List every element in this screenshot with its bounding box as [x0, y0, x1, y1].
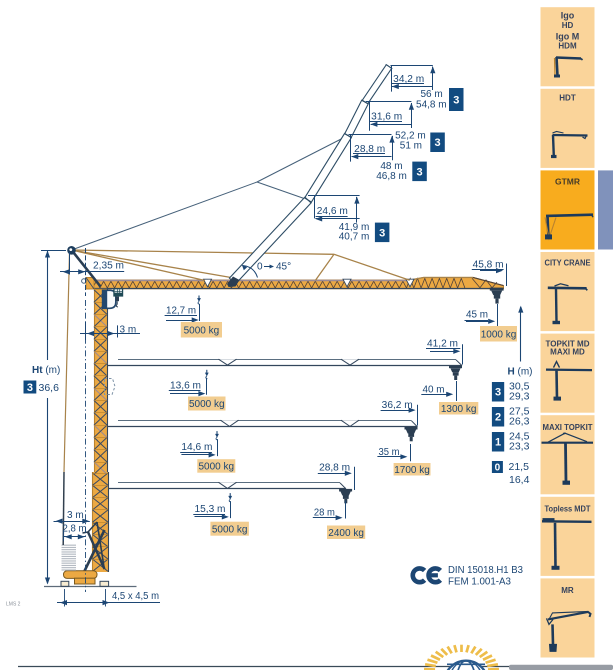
svg-text:3 m: 3 m [120, 325, 137, 336]
svg-text:2: 2 [495, 412, 501, 424]
svg-text:LMS 2: LMS 2 [6, 602, 21, 608]
svg-text:45 m: 45 m [466, 309, 488, 320]
svg-text:HDM: HDM [558, 42, 577, 51]
svg-text:MAXI MD: MAXI MD [550, 348, 585, 357]
svg-text:26,3: 26,3 [509, 416, 530, 428]
svg-text:Igo: Igo [561, 11, 575, 21]
svg-text:41,2 m: 41,2 m [427, 338, 458, 349]
svg-text:15,3 m: 15,3 m [195, 504, 226, 515]
svg-text:1700 kg: 1700 kg [394, 465, 430, 476]
svg-text:3: 3 [453, 94, 459, 106]
svg-text:46,8 m: 46,8 m [376, 171, 407, 182]
svg-text:HD: HD [562, 21, 574, 30]
svg-text:3: 3 [434, 137, 440, 149]
svg-text:13,6 m: 13,6 m [170, 381, 201, 392]
svg-text:24,6 m: 24,6 m [317, 206, 348, 217]
svg-text:0: 0 [495, 463, 501, 474]
svg-text:GTMR: GTMR [555, 176, 580, 186]
svg-text:5000 kg: 5000 kg [189, 399, 225, 410]
svg-text:1000 kg: 1000 kg [481, 329, 517, 340]
svg-text:5000 kg: 5000 kg [212, 524, 248, 535]
svg-text:36,6: 36,6 [39, 382, 60, 394]
svg-text:Ht (m): Ht (m) [32, 365, 60, 376]
svg-text:3: 3 [495, 387, 501, 399]
svg-text:28 m: 28 m [314, 507, 335, 518]
svg-text:MR: MR [561, 586, 574, 595]
svg-text:45°: 45° [276, 262, 291, 273]
svg-text:21,5: 21,5 [509, 461, 530, 473]
svg-text:3: 3 [379, 227, 385, 239]
svg-text:FEM 1.001-A3: FEM 1.001-A3 [448, 576, 511, 587]
svg-text:H (m): H (m) [508, 367, 533, 378]
svg-text:4,5 x 4,5 m: 4,5 x 4,5 m [112, 591, 159, 602]
svg-text:2400 kg: 2400 kg [328, 528, 364, 539]
svg-text:40,7 m: 40,7 m [339, 231, 370, 242]
svg-text:56 m: 56 m [420, 89, 442, 100]
svg-text:HDT: HDT [559, 93, 576, 102]
svg-text:14,6 m: 14,6 m [181, 442, 212, 453]
svg-text:3 m: 3 m [67, 510, 84, 521]
svg-text:54,8 m: 54,8 m [416, 100, 447, 111]
svg-text:1300 kg: 1300 kg [441, 404, 477, 415]
svg-text:2,35 m: 2,35 m [93, 261, 124, 272]
svg-text:36,2 m: 36,2 m [382, 400, 413, 411]
svg-text:2,8 m: 2,8 m [63, 523, 87, 534]
svg-text:3: 3 [27, 382, 33, 394]
svg-text:29,3: 29,3 [509, 391, 530, 403]
svg-text:40 m: 40 m [423, 384, 445, 395]
svg-text:1: 1 [495, 437, 501, 449]
svg-text:0: 0 [257, 262, 263, 273]
svg-text:5000 kg: 5000 kg [199, 462, 235, 473]
svg-text:DIN 15018.H1 B3: DIN 15018.H1 B3 [448, 565, 523, 576]
svg-text:CITY CRANE: CITY CRANE [545, 259, 592, 268]
svg-text:16,4: 16,4 [509, 474, 530, 486]
svg-text:Topless MDT: Topless MDT [545, 504, 591, 513]
svg-text:23,3: 23,3 [509, 441, 530, 453]
svg-text:31,6 m: 31,6 m [371, 112, 402, 123]
svg-text:3: 3 [416, 166, 422, 178]
svg-text:5000 kg: 5000 kg [184, 325, 220, 336]
svg-text:51 m: 51 m [400, 140, 422, 151]
svg-text:12,7 m: 12,7 m [166, 306, 196, 317]
svg-text:45,8 m: 45,8 m [473, 259, 504, 270]
svg-text:MAXI TOPKIT: MAXI TOPKIT [543, 423, 593, 432]
svg-text:Igo M: Igo M [556, 32, 580, 42]
